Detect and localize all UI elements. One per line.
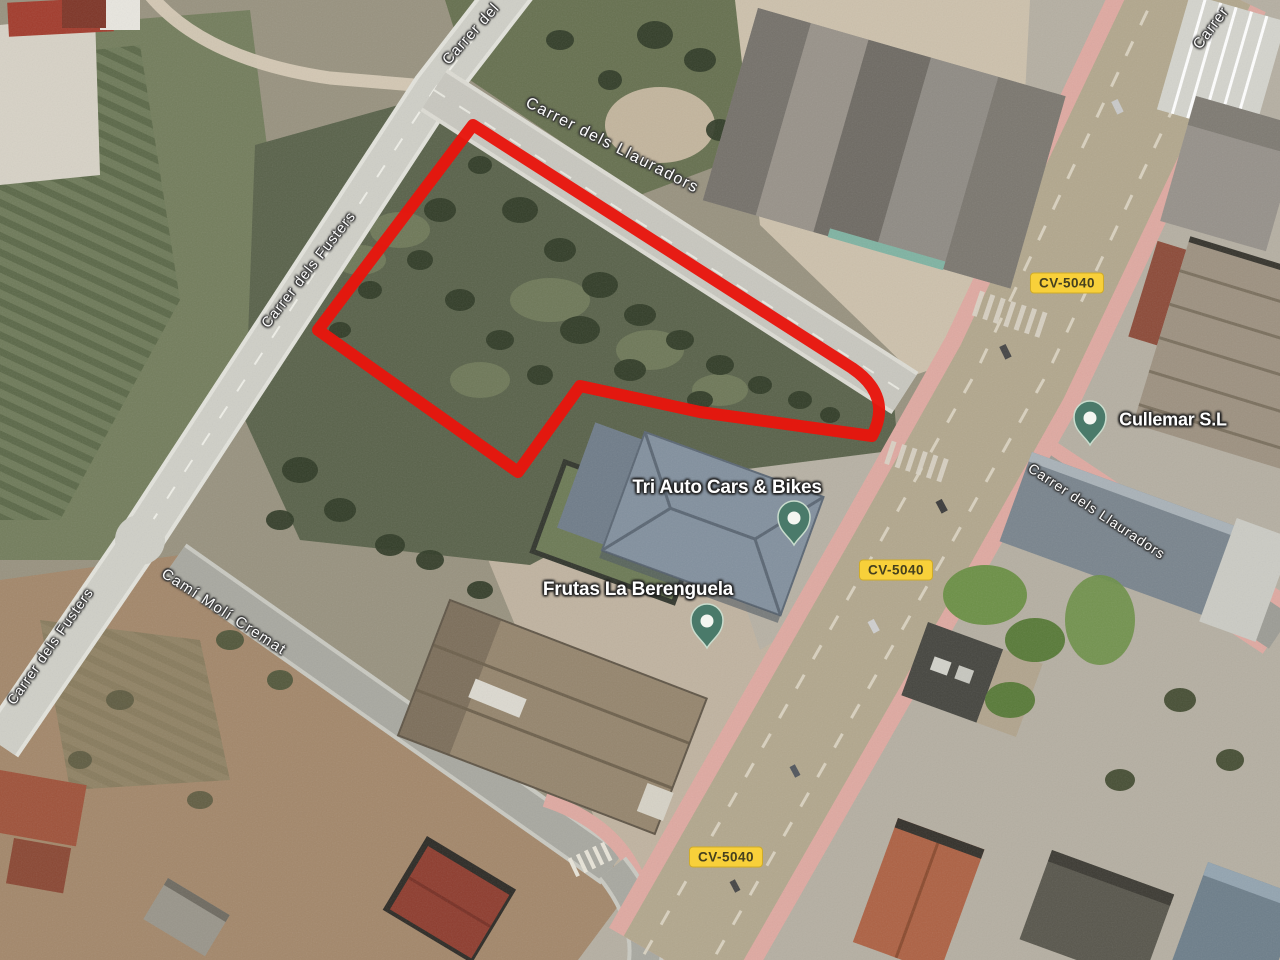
road-badge-cv5040-1: CV-5040 — [1030, 273, 1104, 294]
road-badge-cv5040-2: CV-5040 — [859, 560, 933, 581]
road-badge-cv5040-3: CV-5040 — [689, 847, 763, 868]
place-label-cullemar[interactable]: Cullemar S.L — [1119, 410, 1227, 431]
place-label-frutas[interactable]: Frutas La Berenguela — [543, 579, 733, 601]
place-label-tri-auto[interactable]: Tri Auto Cars & Bikes — [632, 477, 821, 499]
map-viewport[interactable]: Carrer del Carrer dels Llauradors Carrer… — [0, 0, 1280, 960]
